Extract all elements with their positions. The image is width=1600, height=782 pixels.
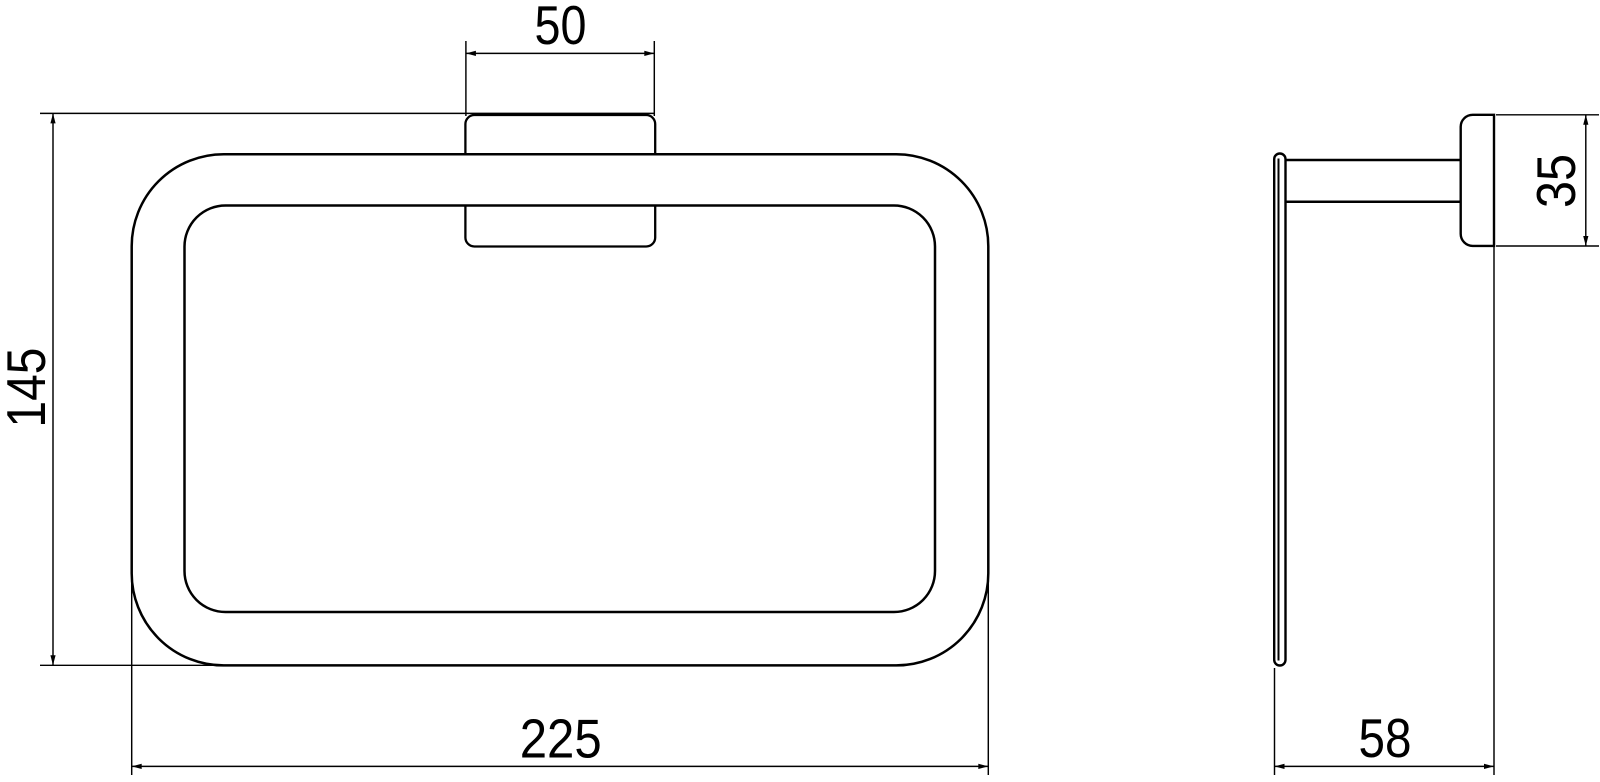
svg-text:225: 225 xyxy=(520,707,602,769)
svg-text:58: 58 xyxy=(1359,707,1412,769)
svg-text:50: 50 xyxy=(535,0,587,56)
svg-text:35: 35 xyxy=(1525,154,1587,208)
svg-text:145: 145 xyxy=(0,348,57,428)
